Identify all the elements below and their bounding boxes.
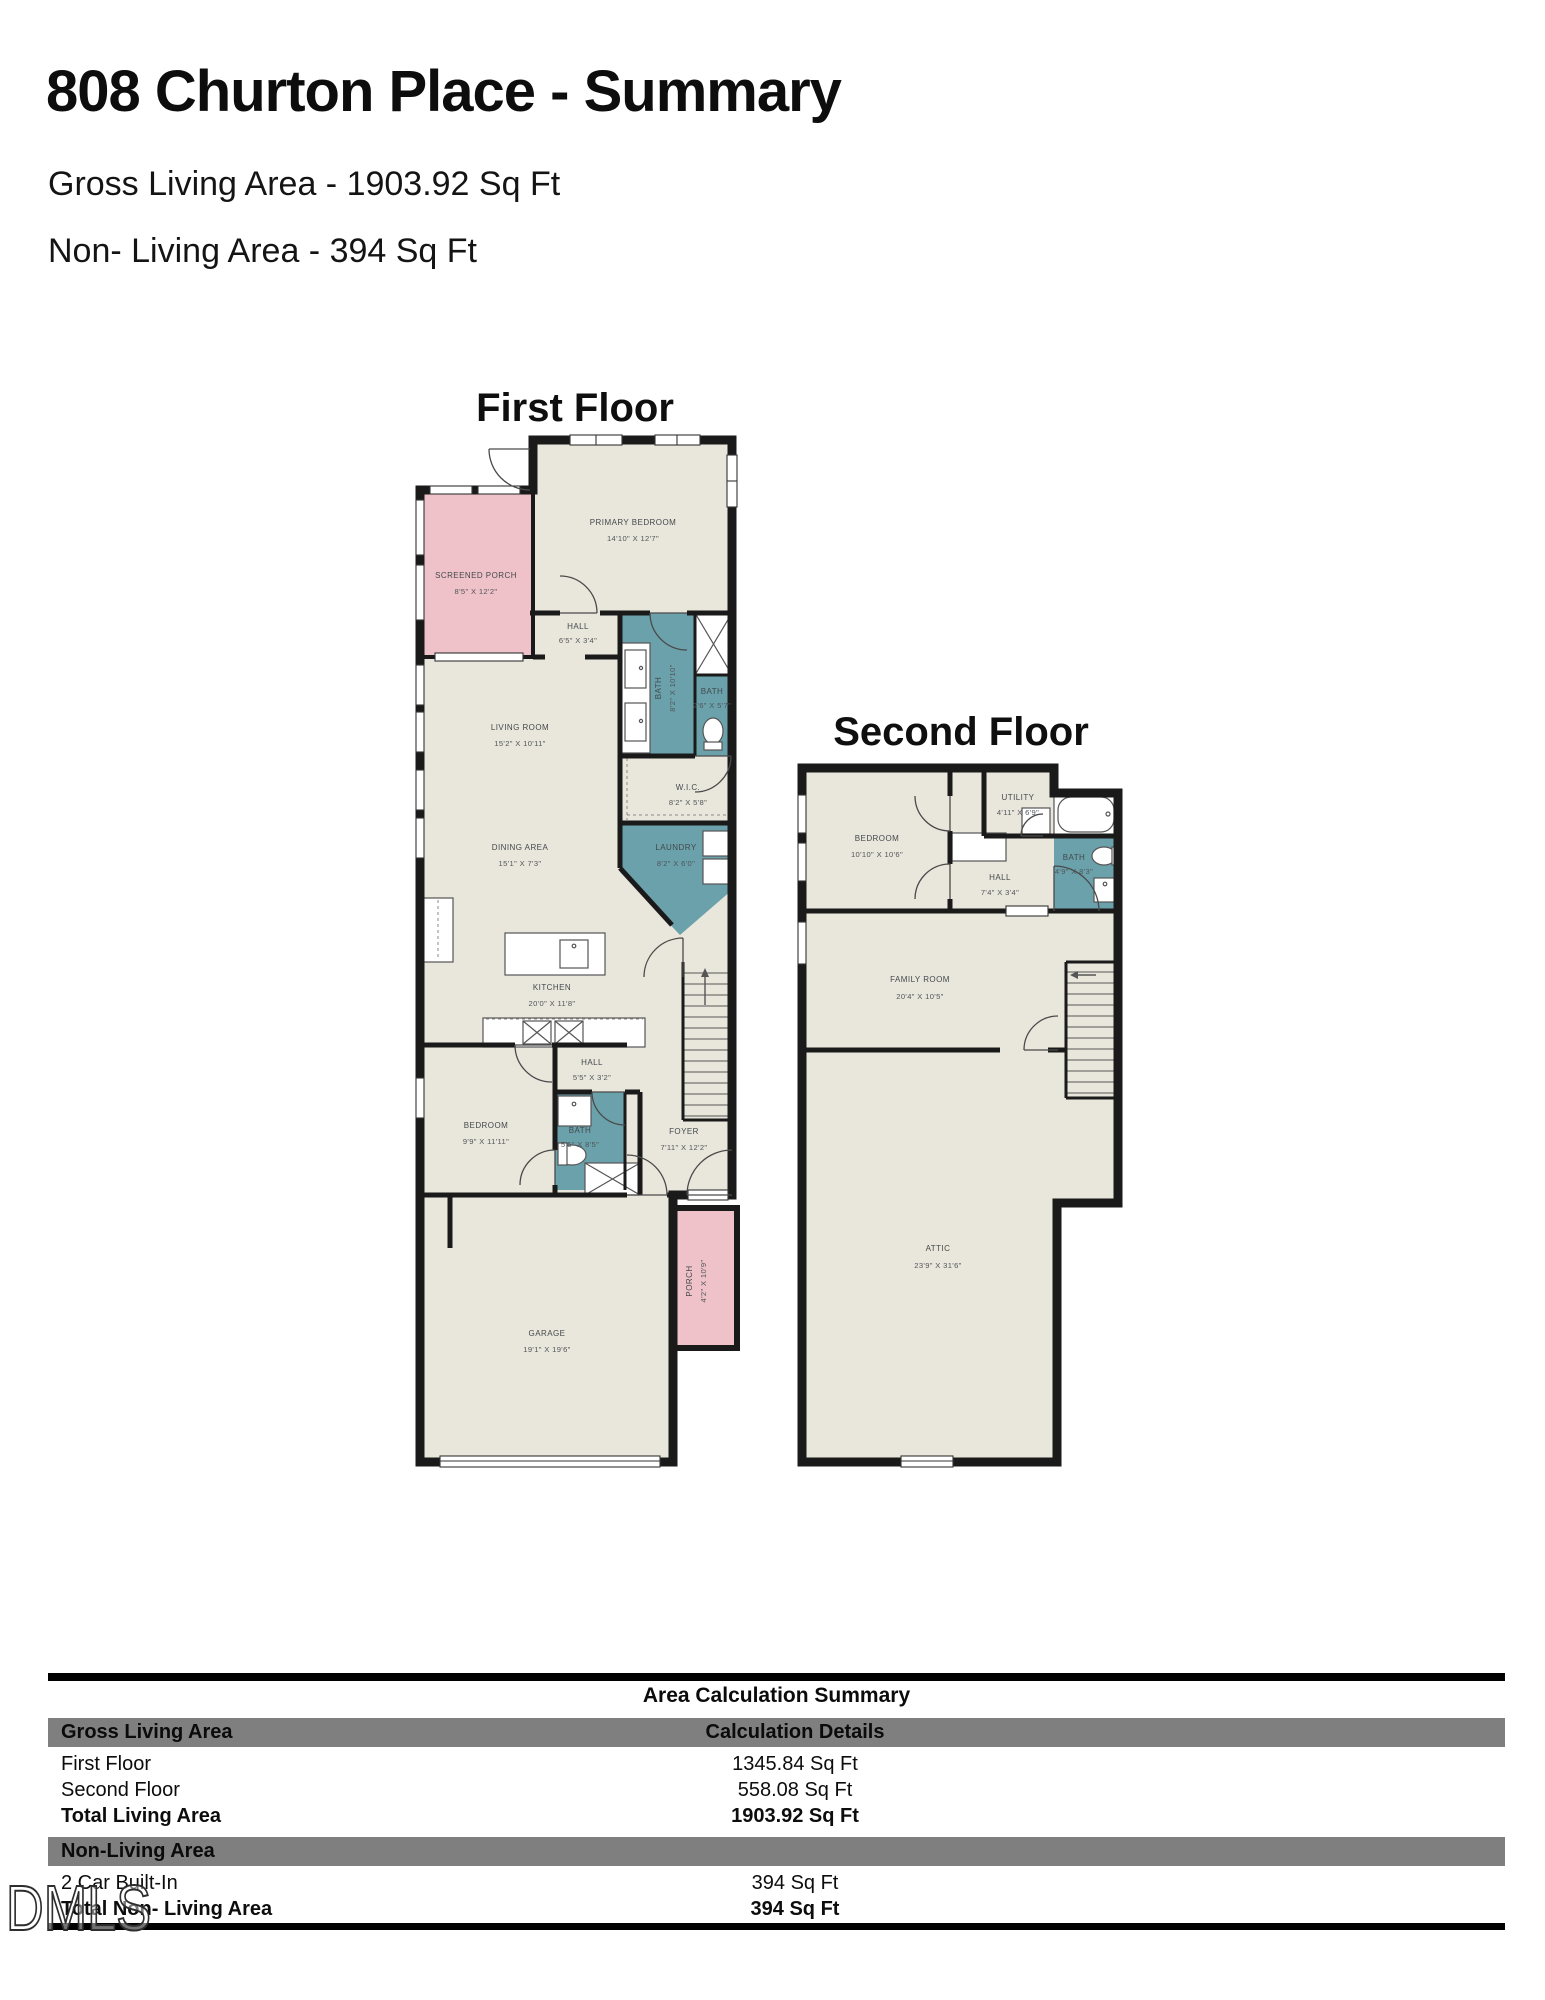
mls-watermark: DMLS	[0, 1872, 330, 1957]
room-label: HALL	[567, 622, 589, 631]
room-label: GARAGE	[529, 1329, 566, 1338]
room-label: UTILITY	[1002, 793, 1035, 802]
room-dims: 15'2" X 10'11"	[494, 739, 545, 748]
table-row: First Floor 1345.84 Sq Ft	[48, 1753, 1505, 1779]
second-floor-heading: Second Floor	[795, 710, 1127, 755]
room-label: W.I.C.	[676, 783, 700, 792]
row-label: Total Living Area	[61, 1805, 221, 1828]
row-label: First Floor	[61, 1753, 151, 1776]
second-floor-plan: BEDROOM 10'10" X 10'6" UTILITY 4'11" X 6…	[795, 758, 1127, 1470]
room-label: FAMILY ROOM	[890, 975, 950, 984]
room-label: LIVING ROOM	[491, 723, 549, 732]
room-dims: 8'2" X 5'8"	[669, 798, 707, 807]
room-label: BATH	[701, 687, 724, 696]
row-value: 1345.84 Sq Ft	[732, 1753, 858, 1776]
table-row-total-living: Total Living Area 1903.92 Sq Ft	[48, 1805, 1505, 1831]
page-title: 808 Churton Place - Summary	[46, 58, 841, 125]
room-label: BATH	[569, 1126, 592, 1135]
room-dims: 9'9" X 11'11"	[463, 1137, 509, 1146]
non-living-header-row: Non-Living Area	[48, 1837, 1505, 1866]
table-top-rule	[48, 1673, 1505, 1681]
room-label: PRIMARY BEDROOM	[590, 518, 676, 527]
room-dims: 4'2" X 10'9"	[699, 1260, 708, 1303]
room-dims: 8'2" X 10'10"	[668, 664, 677, 711]
room-label: HALL	[581, 1058, 603, 1067]
gross-living-area-subtitle: Gross Living Area - 1903.92 Sq Ft	[48, 165, 560, 204]
room-label: KITCHEN	[533, 983, 571, 992]
room-label: LAUNDRY	[655, 843, 696, 852]
first-floor-plan: SCREENED PORCH 8'5" X 12'2" PRIMARY BEDR…	[408, 430, 742, 1475]
room-label: FOYER	[669, 1127, 699, 1136]
room-dims: 23'9" X 31'6"	[914, 1261, 961, 1270]
room-dims: 14'10" X 12'7"	[607, 534, 659, 543]
table-title: Area Calculation Summary	[48, 1684, 1505, 1708]
room-label: ATTIC	[926, 1244, 951, 1253]
first-floor-heading: First Floor	[408, 386, 742, 431]
room-label: BEDROOM	[464, 1121, 509, 1130]
gross-living-header-row: Gross Living Area Calculation Details	[48, 1718, 1505, 1747]
watermark-text: DMLS	[6, 1872, 151, 1944]
room-label: DINING AREA	[492, 843, 549, 852]
room-dims: 15'1" X 7'3"	[499, 859, 542, 868]
row-label: Second Floor	[61, 1779, 180, 1802]
room-label: BATH	[654, 677, 663, 700]
floorplan-summary-page: 808 Churton Place - Summary Gross Living…	[0, 0, 1545, 2000]
room-dims: 8'2" X 6'0"	[657, 859, 695, 868]
room-dims: 20'0" X 11'8"	[529, 999, 576, 1008]
room-dims: 4'9" X 8'3"	[1055, 867, 1093, 876]
room-dims: 10'10" X 10'6"	[851, 850, 903, 859]
row-value: 394 Sq Ft	[751, 1898, 840, 1921]
room-dims: 5'5" X 3'2"	[573, 1073, 611, 1082]
row-value: 1903.92 Sq Ft	[731, 1805, 859, 1828]
room-label: BEDROOM	[855, 834, 900, 843]
row-value: 394 Sq Ft	[752, 1872, 839, 1895]
room-dims: 8'5" X 12'2"	[455, 587, 498, 596]
row-value: 558.08 Sq Ft	[738, 1779, 853, 1802]
room-dims: 2'6" X 5'7"	[693, 701, 731, 710]
room-label: PORCH	[685, 1265, 694, 1296]
room-dims: 19'1" X 19'6"	[523, 1345, 570, 1354]
non-living-area-subtitle: Non- Living Area - 394 Sq Ft	[48, 232, 477, 271]
room-label: SCREENED PORCH	[435, 571, 517, 580]
calculation-details-header: Calculation Details	[706, 1721, 885, 1744]
table-row: Second Floor 558.08 Sq Ft	[48, 1779, 1505, 1805]
room-dims: 20'4" X 10'5"	[896, 992, 943, 1001]
room-label: BATH	[1063, 853, 1086, 862]
room-dims: 5'5" X 8'5"	[561, 1140, 599, 1149]
room-dims: 4'11" X 6'9"	[997, 808, 1039, 817]
room-dims: 6'5" X 3'4"	[559, 636, 597, 645]
non-living-header: Non-Living Area	[61, 1840, 215, 1863]
room-dims: 7'4" X 3'4"	[981, 888, 1019, 897]
room-dims: 7'11" X 12'2"	[661, 1143, 708, 1152]
room-label: HALL	[989, 873, 1011, 882]
gross-living-header: Gross Living Area	[61, 1721, 233, 1744]
